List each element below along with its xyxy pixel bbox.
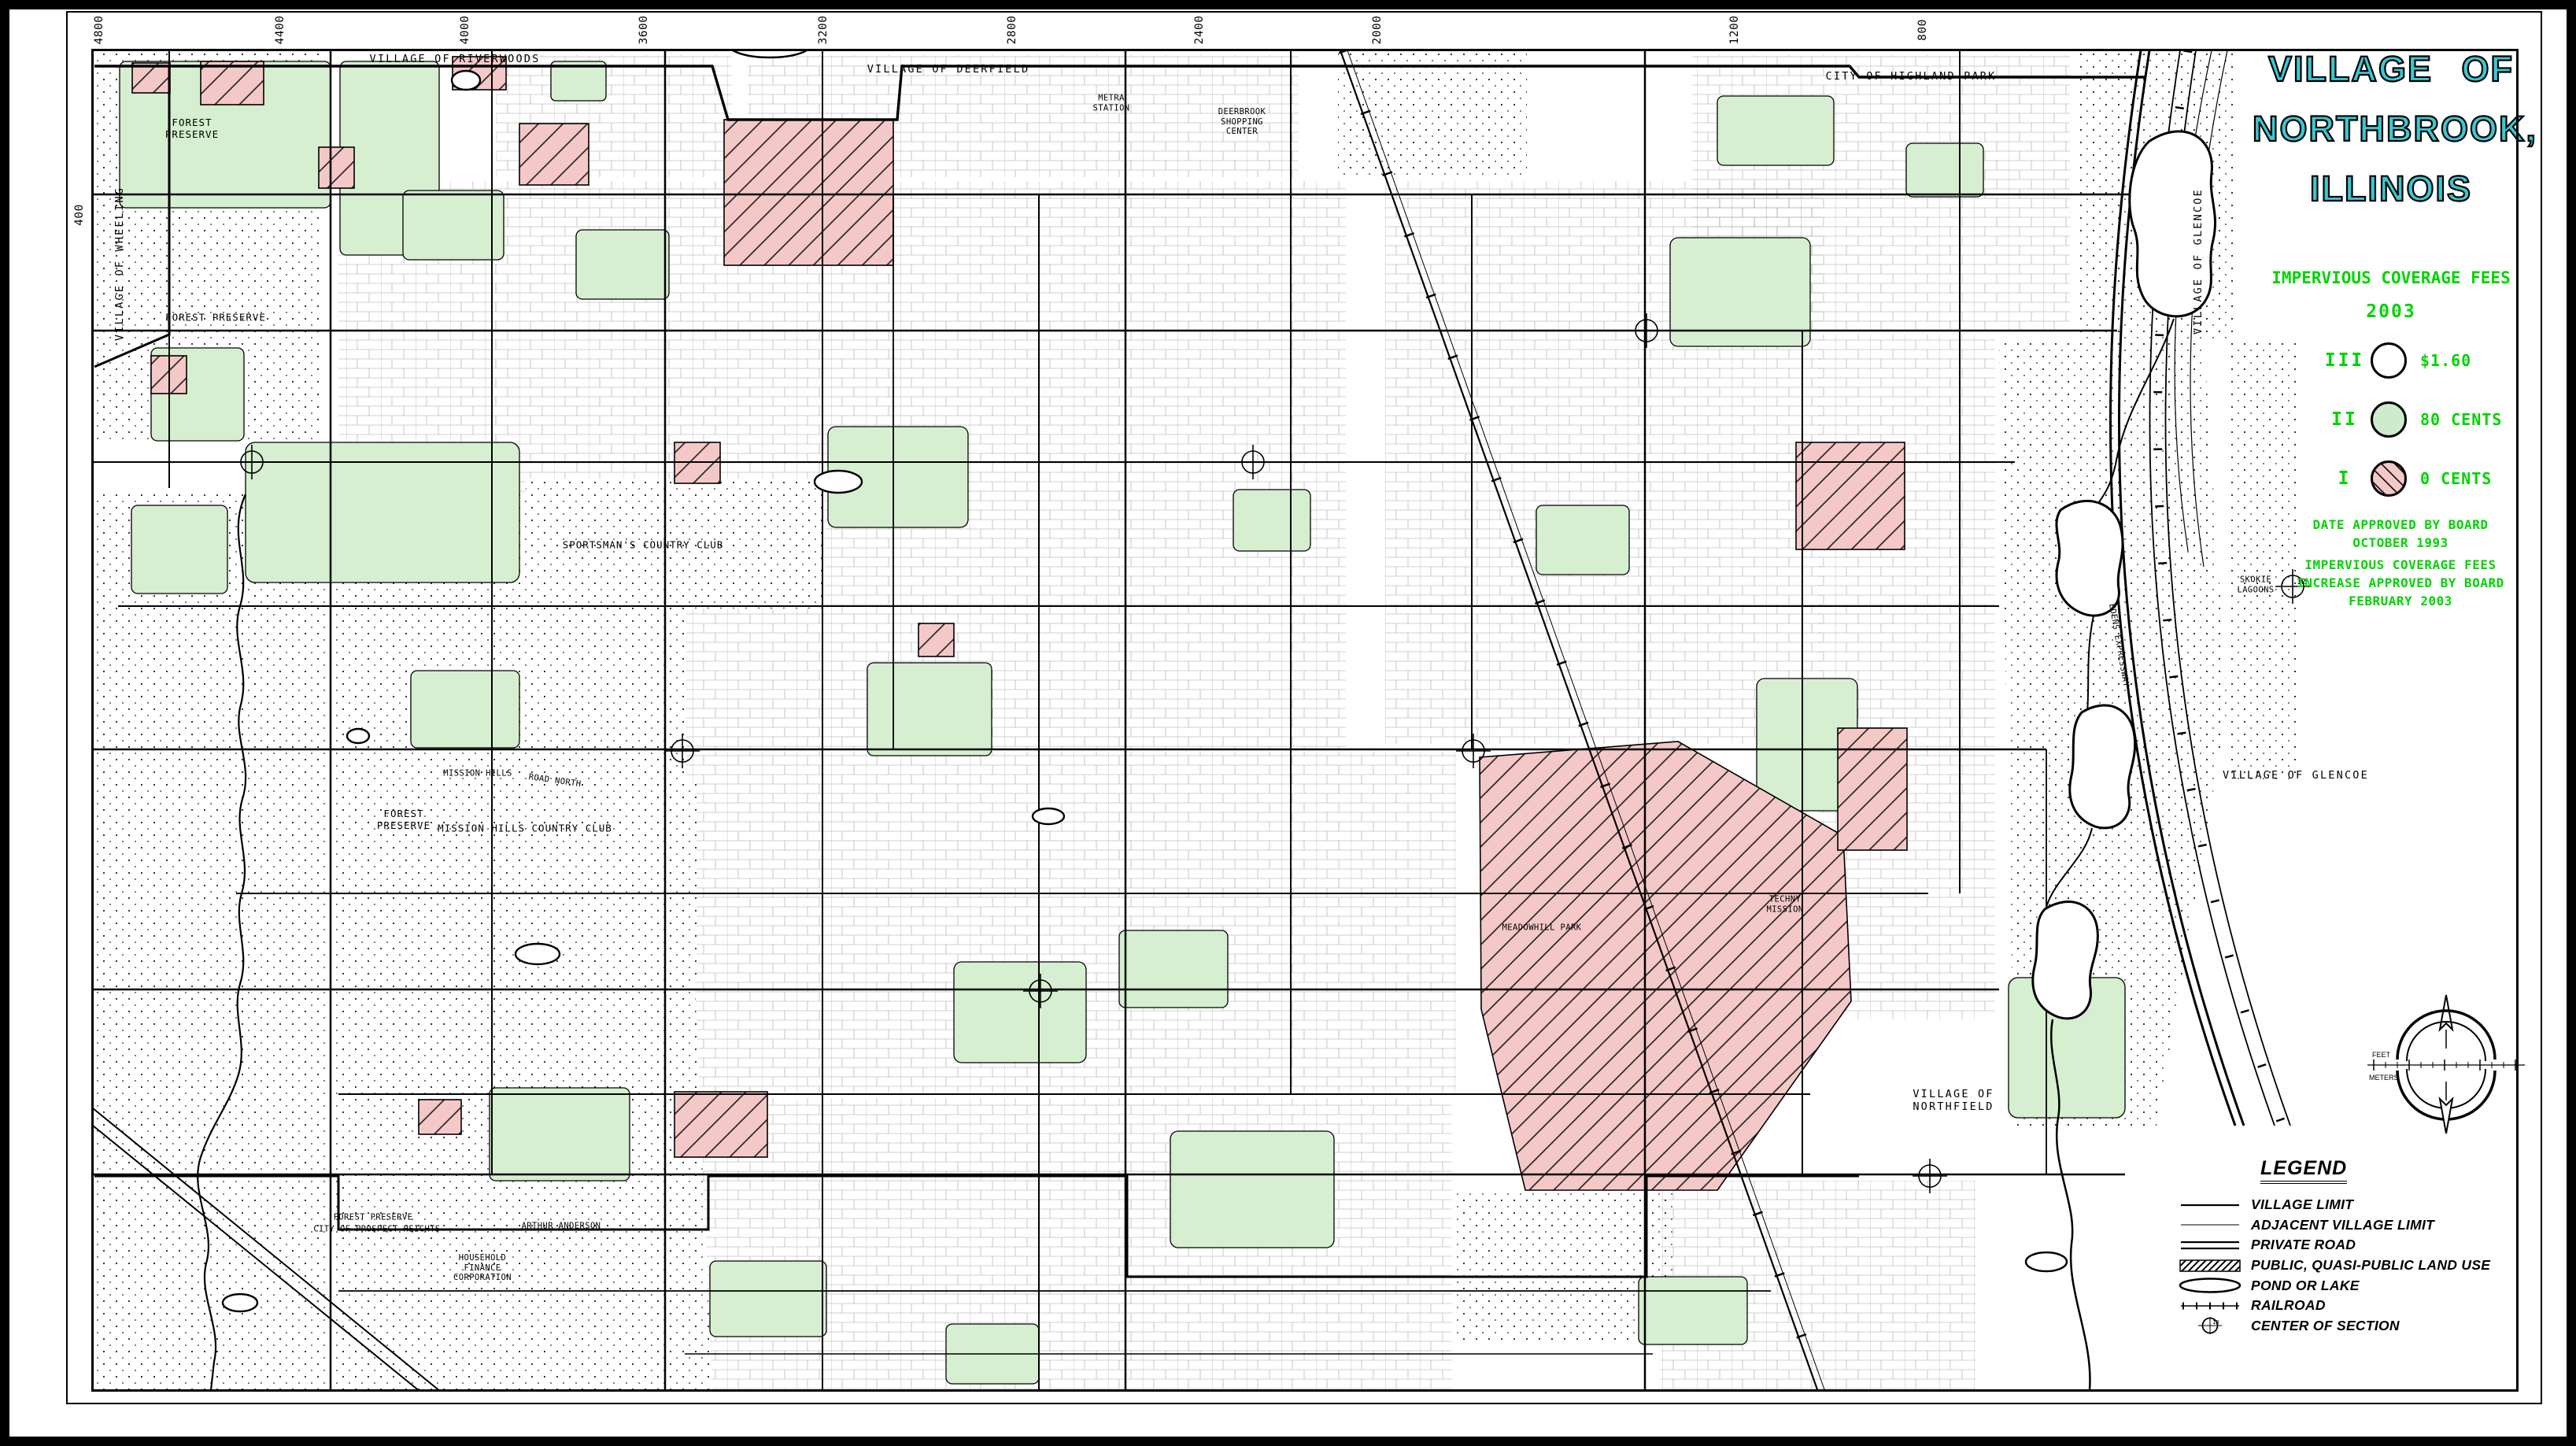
map-sheet: 12 4800440040003600320028002400200012008… — [0, 0, 2576, 1446]
map-frame-border — [91, 49, 2519, 1392]
